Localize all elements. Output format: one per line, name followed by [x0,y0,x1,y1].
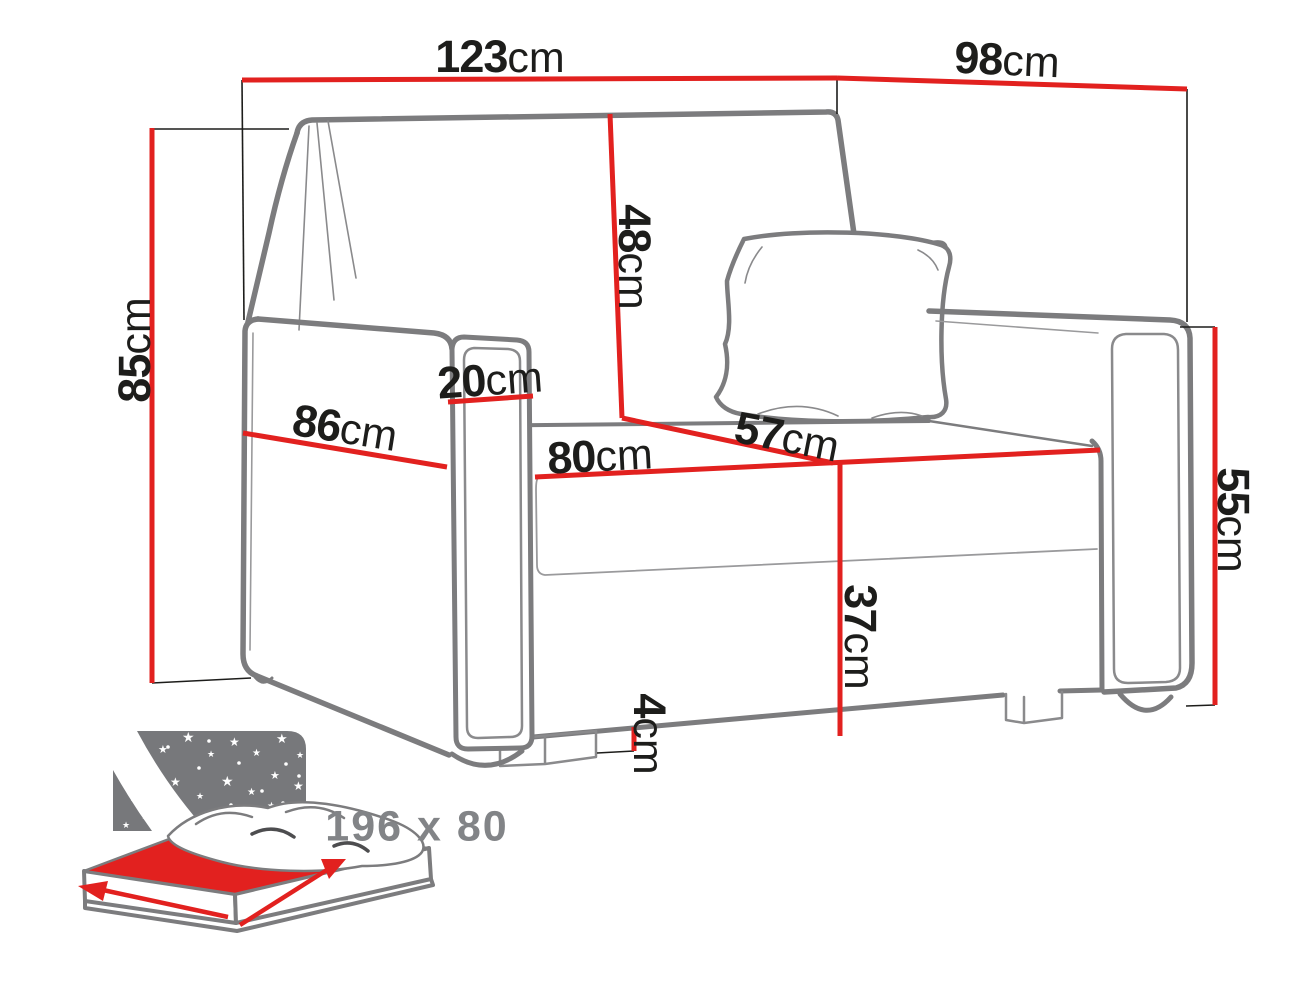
svg-text:★: ★ [207,750,215,760]
dimension-value: 20 [436,354,488,408]
left-armrest-inner-seam [250,333,253,650]
extension-total-height-bottom [152,678,251,683]
seat-cushion-seam [536,478,1097,575]
svg-text:★: ★ [149,766,157,776]
dimension-label-seat-width: 80cm [546,430,654,481]
svg-text:★: ★ [129,793,138,804]
dimension-label-backrest-height: 48cm [611,204,657,309]
dimension-value: 80 [546,430,597,483]
svg-text:★: ★ [158,743,168,756]
svg-text:★: ★ [170,775,181,789]
backrest-left-edge [248,133,297,322]
svg-text:★: ★ [196,792,204,802]
right-armrest-panel [1112,334,1180,683]
dimension-label-total-depth: 98cm [953,35,1060,86]
dimension-unit: cm [835,632,883,689]
dimension-value: 86 [289,394,344,452]
svg-text:★: ★ [122,821,130,831]
dimension-value: 48 [609,204,660,252]
dimension-unit: cm [624,717,672,774]
svg-text:★: ★ [270,769,280,782]
left-armrest-top-edge [258,319,452,349]
dimension-label-total-height: 85cm [112,297,158,402]
dimension-unit: cm [1208,515,1256,572]
svg-text:★: ★ [296,751,304,761]
dimension-unit: cm [594,430,654,481]
left-armrest-side [243,319,449,755]
pillow [716,232,950,421]
dimension-value: 123 [435,31,507,82]
svg-text:★: ★ [293,779,304,793]
dimension-label-total-width: 123cm [435,34,564,80]
base-bottom-edge [533,690,1102,737]
svg-text:★: ★ [141,812,148,821]
extension-total-width-left [242,80,244,320]
dimension-value: 85 [109,355,160,403]
dimension-value: 4 [624,693,675,717]
svg-text:★: ★ [276,732,288,747]
sofa-diagram-svg: ★★ ★★ ★★ ★★ ★★ ★★ ★★ ★★ ★★ ★★ ★★ ★★ [0,0,1314,985]
front-right-leg [1006,692,1062,723]
dimension-unit: cm [507,34,564,82]
svg-text:★: ★ [252,748,261,759]
left-armrest-foot [452,751,522,765]
right-armrest-outline [929,311,1192,692]
dimension-label-leg-height: 4cm [626,693,672,774]
extension-armrest-height-bottom [1186,705,1215,706]
dimension-value: 98 [953,32,1003,85]
svg-text:★: ★ [158,804,167,815]
seat-back-edge-right [929,421,1092,446]
right-armrest-foot [1120,694,1171,710]
dimension-value: 37 [835,584,886,632]
svg-text:★: ★ [221,774,234,790]
dimension-label-seat-height: 37cm [837,584,883,689]
dimension-label-armrest-width: 20cm [436,353,544,406]
right-armrest-inner-edge [1092,441,1102,690]
dimension-unit: cm [1001,37,1060,87]
dimension-label-armrest-height: 55cm [1210,467,1256,572]
svg-text:★: ★ [229,735,240,749]
dimension-unit: cm [112,297,160,354]
svg-text:★: ★ [120,775,127,784]
right-armrest-top-seam [936,321,1098,333]
svg-text:★: ★ [247,787,256,798]
backrest-pleat-lines [299,121,356,330]
svg-text:★: ★ [182,730,195,746]
diagram-canvas: ★★ ★★ ★★ ★★ ★★ ★★ ★★ ★★ ★★ ★★ ★★ ★★ [0,0,1314,985]
dimension-unit: cm [337,405,401,461]
dimension-unit: cm [609,252,657,309]
dimension-unit: cm [484,353,545,405]
sleeping-area-size-label: 196 x 80 [325,806,508,849]
dimension-value: 55 [1208,467,1259,515]
